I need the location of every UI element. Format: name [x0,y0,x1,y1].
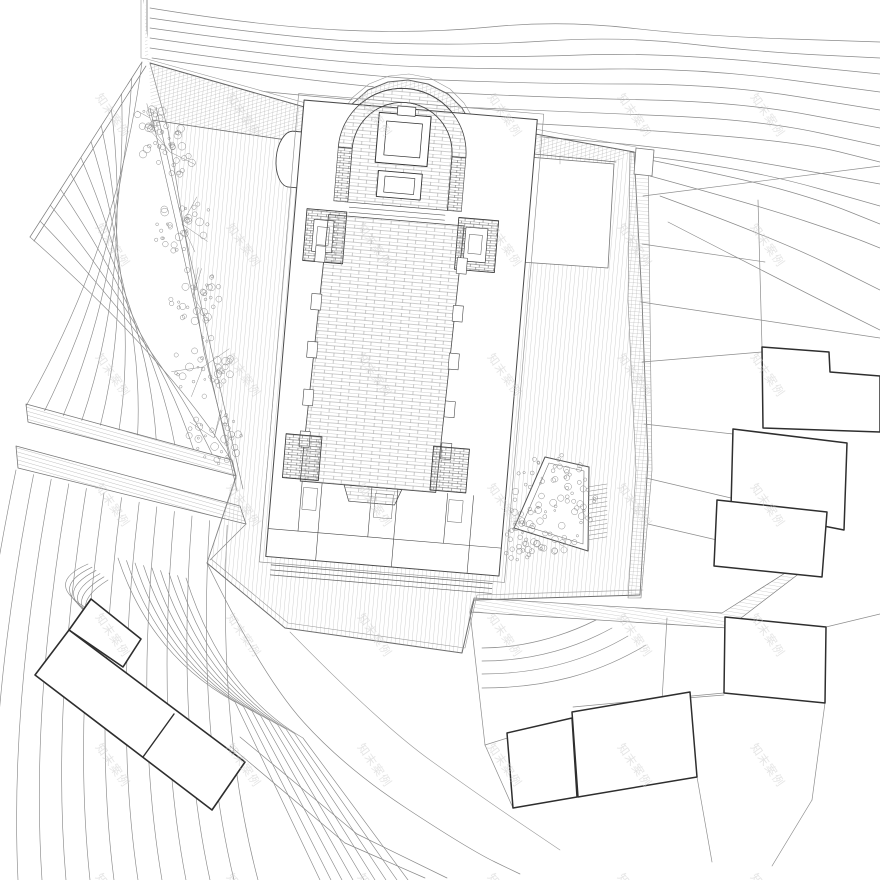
watermark-text: 知末案例 [748,871,788,880]
watermark-text: 知末案例 [224,611,264,660]
site-plan-page: 知末案例知末案例知末案例知末案例知末案例知末案例知末案例知末案例知末案例知末案例… [0,0,880,880]
watermark-text: 知末案例 [748,91,788,140]
watermark-text: 知末案例 [93,91,133,140]
watermark-text: 知末案例 [93,351,133,400]
watermark-text: 知末案例 [748,741,788,790]
watermark-text: 知末案例 [485,871,525,880]
watermark-text: 知末案例 [355,741,395,790]
watermark-text: 知末案例 [93,221,133,270]
watermark-text: 知末案例 [93,871,133,880]
watermark-text: 知末案例 [615,871,655,880]
watermark-text: 知末案例 [748,221,788,270]
watermark-text: 知末案例 [485,611,525,660]
church-plan [241,78,545,594]
watermark-text: 知末案例 [355,871,395,880]
site-plan-drawing: 知末案例知末案例知末案例知末案例知末案例知末案例知末案例知末案例知末案例知末案例… [0,0,880,880]
